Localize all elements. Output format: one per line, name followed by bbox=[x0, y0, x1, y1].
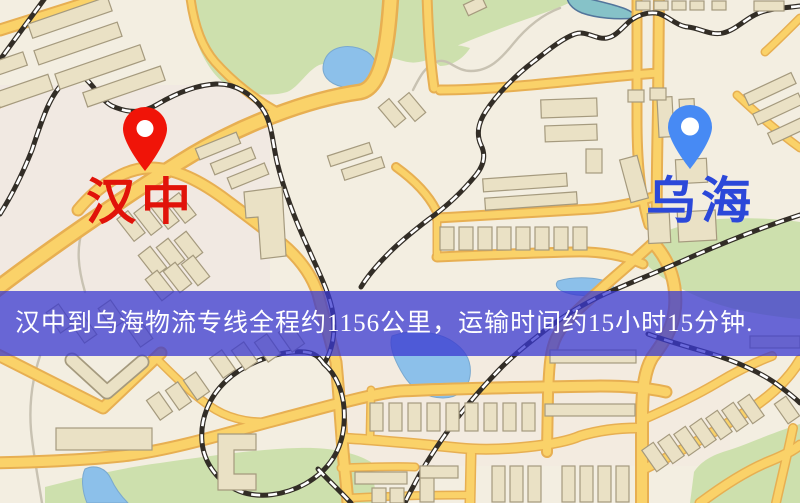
map-canvas bbox=[0, 0, 800, 503]
destination-pin[interactable] bbox=[667, 104, 713, 170]
origin-pin[interactable] bbox=[122, 106, 168, 172]
map-pin-icon bbox=[122, 106, 168, 172]
map-pin-icon bbox=[667, 104, 713, 170]
origin-label: 汉中 bbox=[86, 177, 196, 227]
route-info-banner: 汉中到乌海物流专线全程约1156公里，运输时间约15小时15分钟. bbox=[0, 291, 800, 356]
logistics-route-map: 汉中 乌海 汉中到乌海物流专线全程约1156公里，运输时间约15小时15分钟. bbox=[0, 0, 800, 503]
route-info-text: 汉中到乌海物流专线全程约1156公里，运输时间约15小时15分钟. bbox=[0, 309, 753, 339]
destination-label: 乌海 bbox=[646, 176, 756, 226]
